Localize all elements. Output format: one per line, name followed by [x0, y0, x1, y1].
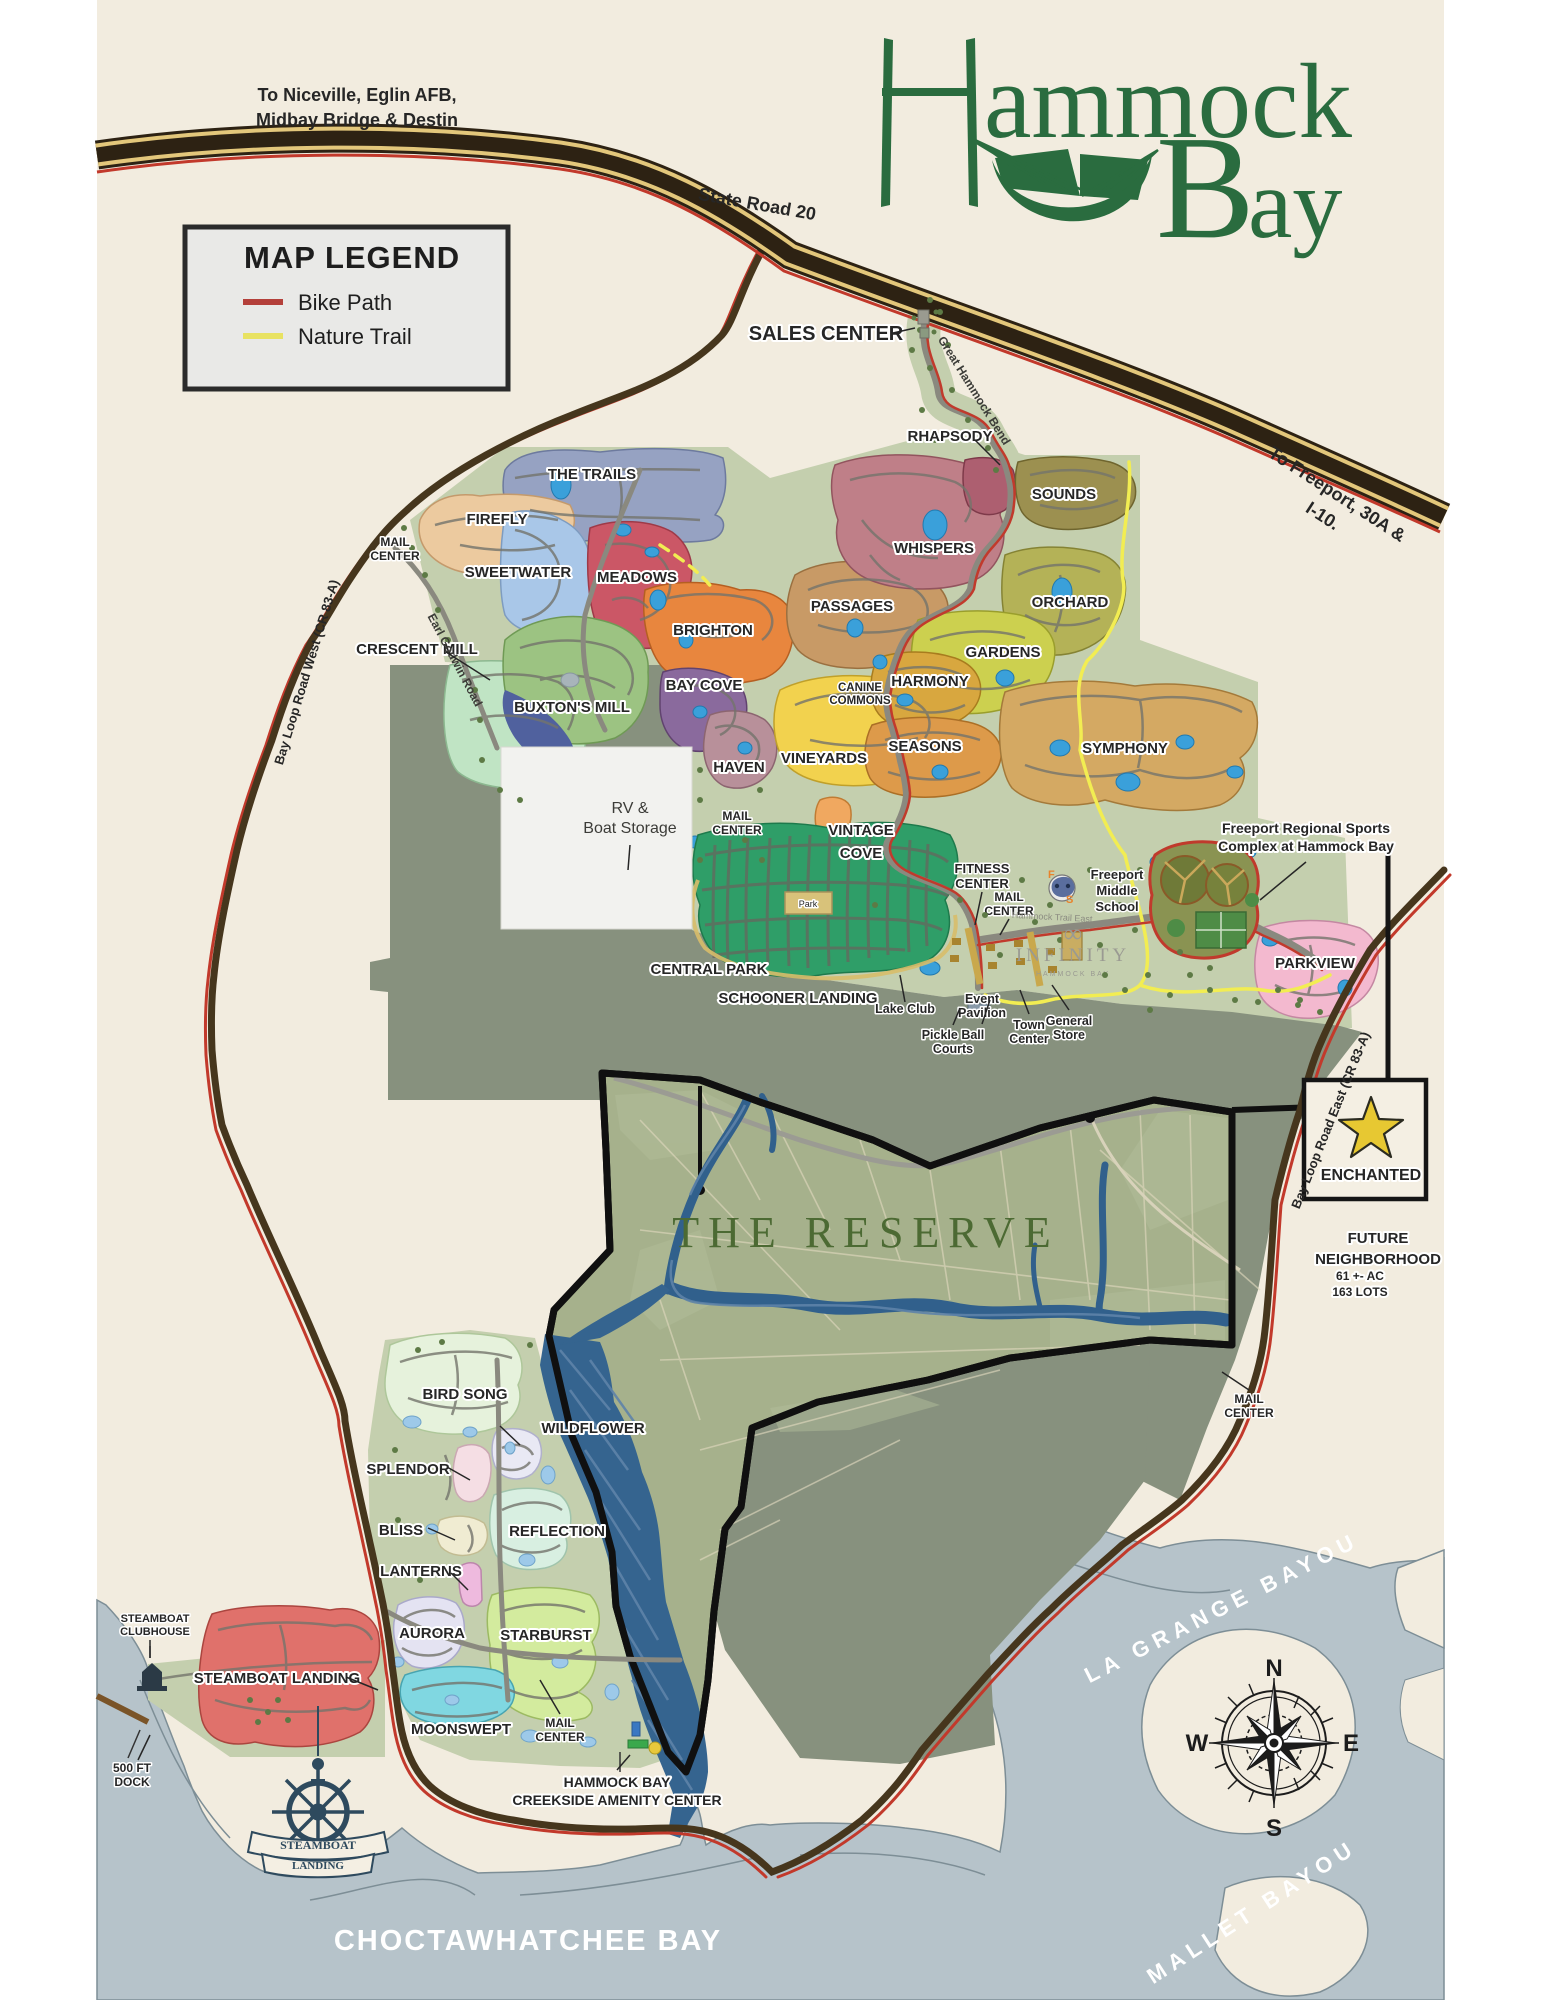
- svg-text:S: S: [1066, 894, 1073, 906]
- svg-text:SYMPHONY: SYMPHONY: [1082, 740, 1168, 757]
- svg-text:BIRD SONG: BIRD SONG: [422, 1386, 507, 1403]
- svg-text:BLISS: BLISS: [379, 1522, 423, 1539]
- svg-text:BRIGHTON: BRIGHTON: [673, 622, 753, 639]
- svg-text:CREEKSIDE AMENITY CENTER: CREEKSIDE AMENITY CENTER: [512, 1792, 721, 1808]
- svg-text:SCHOONER LANDING: SCHOONER LANDING: [718, 990, 877, 1007]
- svg-text:COVE: COVE: [840, 845, 883, 862]
- svg-text:CENTER: CENTER: [370, 549, 420, 563]
- svg-text:GARDENS: GARDENS: [965, 644, 1040, 661]
- svg-text:General: General: [1046, 1014, 1093, 1028]
- svg-text:ORCHARD: ORCHARD: [1032, 594, 1109, 611]
- svg-text:ay: ay: [1248, 148, 1342, 259]
- svg-text:Bike Path: Bike Path: [298, 290, 392, 315]
- svg-text:VINEYARDS: VINEYARDS: [781, 750, 867, 767]
- svg-text:61 +- AC: 61 +- AC: [1336, 1269, 1384, 1283]
- svg-text:MAP LEGEND: MAP LEGEND: [244, 240, 460, 275]
- svg-text:Park: Park: [799, 899, 818, 909]
- svg-text:Freeport: Freeport: [1091, 867, 1144, 882]
- svg-text:HAMMOCK BAY: HAMMOCK BAY: [564, 1774, 671, 1790]
- svg-text:FITNESS: FITNESS: [955, 861, 1010, 876]
- svg-text:AURORA: AURORA: [399, 1625, 465, 1642]
- svg-text:Pavilion: Pavilion: [958, 1006, 1006, 1020]
- svg-text:HAMMOCK BAY: HAMMOCK BAY: [1036, 971, 1110, 978]
- svg-text:LANDING: LANDING: [292, 1860, 344, 1872]
- svg-text:THE TRAILS: THE TRAILS: [548, 466, 636, 483]
- svg-text:To Niceville, Eglin AFB,: To Niceville, Eglin AFB,: [257, 85, 456, 105]
- svg-text:CENTER: CENTER: [1224, 1406, 1274, 1420]
- svg-text:VINTAGE: VINTAGE: [828, 822, 894, 839]
- svg-text:FIREFLY: FIREFLY: [466, 511, 527, 528]
- svg-text:Store: Store: [1053, 1028, 1085, 1042]
- svg-text:MEADOWS: MEADOWS: [597, 569, 677, 586]
- svg-text:HAVEN: HAVEN: [713, 759, 764, 776]
- svg-text:Complex at Hammock Bay: Complex at Hammock Bay: [1218, 838, 1394, 854]
- svg-text:PASSAGES: PASSAGES: [811, 598, 893, 615]
- svg-text:MOONSWEPT: MOONSWEPT: [411, 1721, 511, 1738]
- svg-text:Town: Town: [1013, 1018, 1045, 1032]
- svg-text:MAIL: MAIL: [994, 890, 1023, 904]
- svg-text:S: S: [1266, 1815, 1282, 1842]
- svg-text:STEAMBOAT LANDING: STEAMBOAT LANDING: [194, 1670, 360, 1687]
- svg-text:Courts: Courts: [933, 1042, 973, 1056]
- svg-text:CENTRAL PARK: CENTRAL PARK: [651, 961, 768, 978]
- svg-text:CHOCTAWHATCHEE BAY: CHOCTAWHATCHEE BAY: [334, 1925, 722, 1957]
- svg-text:Lake Club: Lake Club: [875, 1002, 935, 1016]
- svg-text:MAIL: MAIL: [1234, 1392, 1263, 1406]
- svg-text:PARKVIEW: PARKVIEW: [1275, 955, 1356, 972]
- svg-text:THE RESERVE: THE RESERVE: [672, 1208, 1060, 1257]
- svg-text:SPLENDOR: SPLENDOR: [366, 1461, 450, 1478]
- svg-text:NEIGHBORHOOD: NEIGHBORHOOD: [1315, 1251, 1441, 1268]
- svg-text:ENCHANTED: ENCHANTED: [1321, 1167, 1421, 1184]
- svg-text:Event: Event: [965, 992, 1000, 1006]
- svg-text:COMMONS: COMMONS: [829, 695, 891, 707]
- svg-text:RV &: RV &: [611, 800, 648, 817]
- svg-text:RHAPSODY: RHAPSODY: [907, 428, 992, 445]
- svg-text:School: School: [1095, 899, 1138, 914]
- svg-text:SOUNDS: SOUNDS: [1032, 486, 1096, 503]
- svg-text:DOCK: DOCK: [114, 1775, 150, 1789]
- svg-text:CLUBHOUSE: CLUBHOUSE: [120, 1626, 190, 1638]
- svg-text:F: F: [1048, 869, 1055, 881]
- svg-text:Boat Storage: Boat Storage: [583, 820, 677, 837]
- svg-text:INFINITY: INFINITY: [1016, 945, 1130, 966]
- svg-text:MAIL: MAIL: [380, 535, 409, 549]
- svg-text:CENTER: CENTER: [955, 876, 1009, 891]
- svg-text:BUXTON'S MILL: BUXTON'S MILL: [514, 699, 630, 716]
- svg-text:BAY COVE: BAY COVE: [666, 677, 743, 694]
- svg-text:CANINE: CANINE: [838, 682, 882, 694]
- svg-text:Nature Trail: Nature Trail: [298, 324, 412, 349]
- svg-text:FUTURE: FUTURE: [1348, 1230, 1409, 1247]
- svg-text:MAIL: MAIL: [722, 809, 751, 823]
- svg-text:HARMONY: HARMONY: [891, 673, 969, 690]
- svg-text:WILDFLOWER: WILDFLOWER: [541, 1420, 644, 1437]
- svg-text:Center: Center: [1009, 1032, 1049, 1046]
- svg-text:SWEETWATER: SWEETWATER: [465, 564, 572, 581]
- svg-text:Middle: Middle: [1096, 883, 1137, 898]
- svg-text:163 LOTS: 163 LOTS: [1332, 1285, 1387, 1299]
- svg-text:SEASONS: SEASONS: [888, 738, 961, 755]
- svg-text:E: E: [1343, 1730, 1359, 1757]
- svg-text:B: B: [1156, 106, 1255, 270]
- svg-text:CENTER: CENTER: [535, 1730, 585, 1744]
- svg-text:WHISPERS: WHISPERS: [894, 540, 974, 557]
- svg-text:W: W: [1186, 1730, 1209, 1757]
- svg-text:N: N: [1265, 1655, 1282, 1682]
- svg-text:500 FT: 500 FT: [113, 1761, 152, 1775]
- svg-text:Freeport Regional Sports: Freeport Regional Sports: [1222, 820, 1390, 836]
- svg-text:SALES CENTER: SALES CENTER: [749, 323, 904, 345]
- svg-text:STARBURST: STARBURST: [500, 1627, 591, 1644]
- svg-text:MAIL: MAIL: [545, 1716, 574, 1730]
- svg-text:REFLECTION: REFLECTION: [509, 1523, 605, 1540]
- svg-text:Midbay Bridge & Destin: Midbay Bridge & Destin: [256, 110, 458, 130]
- svg-text:STEAMBOAT: STEAMBOAT: [121, 1613, 190, 1625]
- svg-text:CENTER: CENTER: [712, 823, 762, 837]
- svg-text:STEAMBOAT: STEAMBOAT: [280, 1838, 356, 1852]
- svg-text:Pickle Ball: Pickle Ball: [922, 1028, 985, 1042]
